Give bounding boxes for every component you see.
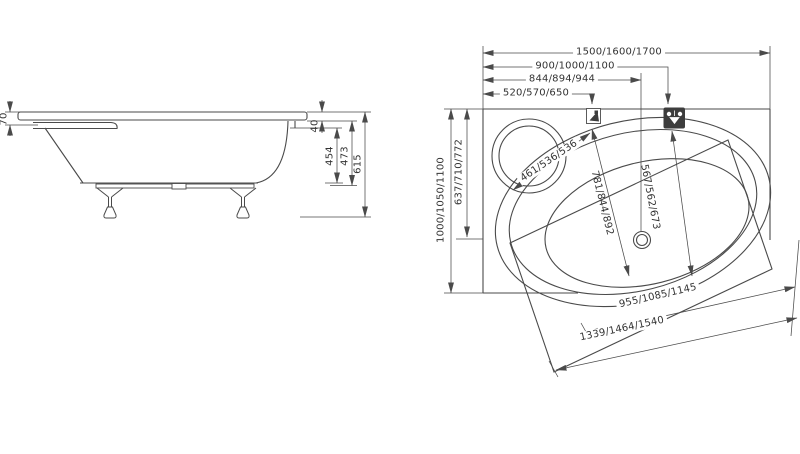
mixer-tap-icon bbox=[664, 108, 686, 129]
dim-label-inner-depth: 454 bbox=[325, 146, 336, 166]
side-view bbox=[5, 100, 371, 218]
dim-label-mixer-position: 900/1000/1100 bbox=[532, 61, 617, 72]
dim-label-overall-length: 1500/1600/1700 bbox=[573, 47, 665, 58]
dim-label-outer-depth: 473 bbox=[340, 146, 351, 166]
bathtub-technical-drawing: 1500/1600/1700 900/1000/1100 844/894/944… bbox=[0, 0, 800, 454]
handshower-icon bbox=[587, 109, 601, 124]
adjustable-foot-right bbox=[230, 188, 256, 218]
dim-label-overall-width: 1000/1050/1100 bbox=[436, 157, 447, 243]
rim-skirt bbox=[33, 123, 117, 129]
dim-label-drain-position: 844/894/944 bbox=[526, 74, 598, 85]
dim-label-handshower-position: 520/570/650 bbox=[500, 88, 572, 99]
dim-label-drain-offset: 637/710/772 bbox=[454, 139, 465, 205]
drawing-linework bbox=[0, 0, 800, 454]
drain-inner-circle bbox=[637, 235, 648, 246]
adjustable-foot-left bbox=[97, 188, 123, 218]
side-dimension-lines bbox=[5, 100, 371, 217]
dim-label-rim-thickness: 40 bbox=[310, 119, 321, 132]
dim-label-total-height: 615 bbox=[353, 154, 364, 174]
rim-profile bbox=[18, 112, 307, 120]
dim-label-rim-overhang: 70 bbox=[0, 112, 10, 125]
drain-fitting bbox=[172, 184, 186, 190]
bowl-outline bbox=[45, 121, 288, 183]
